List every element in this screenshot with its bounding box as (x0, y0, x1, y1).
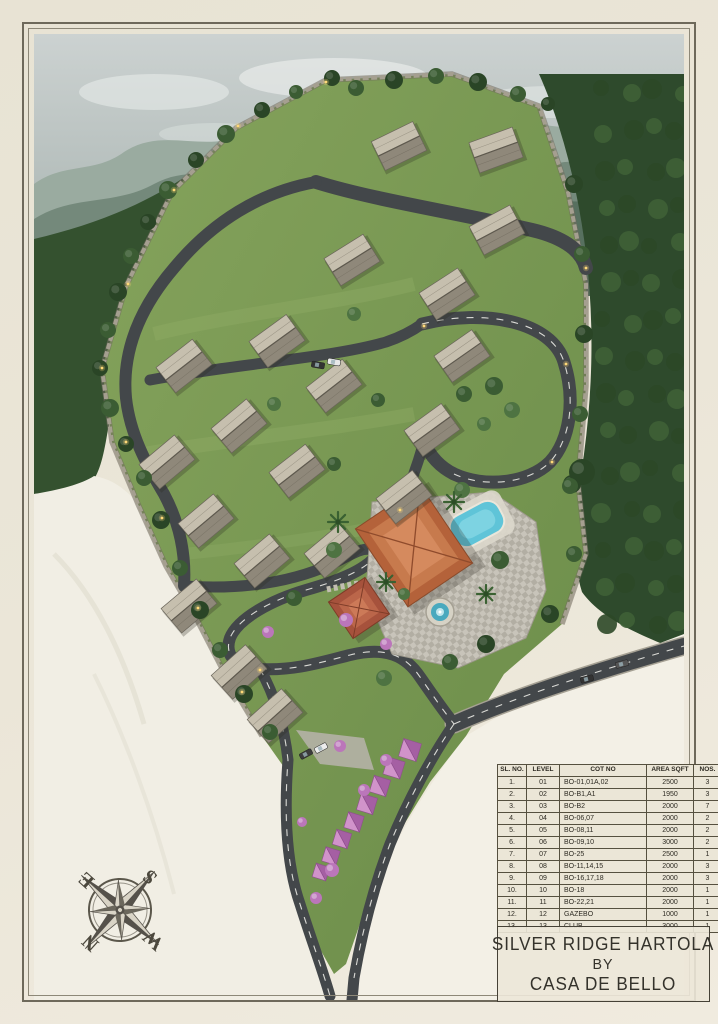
palm-tree (444, 492, 464, 512)
pathway-light (257, 667, 263, 673)
tree (172, 560, 188, 576)
table-cell: 11. (498, 897, 527, 909)
palm-tree (377, 573, 395, 591)
tree (286, 590, 302, 606)
pathway-light (125, 281, 131, 287)
table-cell: 3 (694, 777, 718, 789)
tree (477, 417, 491, 431)
table-cell: BO-18 (560, 885, 647, 897)
table-cell: 1 (694, 909, 718, 921)
table-cell: 1000 (647, 909, 694, 921)
palm-tree (477, 585, 495, 603)
table-cell: 1. (498, 777, 527, 789)
tree (456, 386, 472, 402)
pathway-light (397, 507, 403, 513)
table-cell: 2. (498, 789, 527, 801)
tree (572, 406, 588, 422)
table-cell: 03 (527, 801, 560, 813)
table-cell: 2000 (647, 825, 694, 837)
table-row: 9.09BO-16,17,1820003 (498, 873, 718, 885)
title-by: BY (593, 956, 614, 973)
table-cell: 3. (498, 801, 527, 813)
table-cell: 4. (498, 813, 527, 825)
table-row: 4.04BO-06,0720002 (498, 813, 718, 825)
table-cell: 12 (527, 909, 560, 921)
tree (477, 635, 495, 653)
table-cell: 9. (498, 873, 527, 885)
tree (454, 482, 470, 498)
table-cell: BO-11,14,15 (560, 861, 647, 873)
table-cell: 06 (527, 837, 560, 849)
table-cell: BO-08,11 (560, 825, 647, 837)
tree (326, 542, 342, 558)
column-header: AREA SQFT (647, 765, 694, 777)
tree (327, 457, 341, 471)
tree (398, 588, 410, 600)
table-cell: 7. (498, 849, 527, 861)
plot-table-header: SL. NO.LEVELCOT NOAREA SQFTNOS. (498, 765, 718, 777)
column-header: SL. NO. (498, 765, 527, 777)
table-cell: 1 (694, 897, 718, 909)
pathway-light (99, 365, 105, 371)
pathway-light (323, 79, 329, 85)
table-cell: 11 (527, 897, 560, 909)
table-cell: 1950 (647, 789, 694, 801)
pathway-light (235, 123, 241, 129)
table-cell: BO-16,17,18 (560, 873, 647, 885)
table-cell: BO-06,07 (560, 813, 647, 825)
table-cell: 2000 (647, 897, 694, 909)
pathway-light (239, 689, 245, 695)
pathway-light (123, 439, 129, 445)
tree (504, 402, 520, 418)
table-row: 3.03BO-B220007 (498, 801, 718, 813)
table-cell: 3 (694, 789, 718, 801)
table-cell: 2500 (647, 777, 694, 789)
tree (188, 152, 204, 168)
flowering-shrub (297, 817, 307, 827)
compass-rose: N S E W (44, 832, 196, 984)
tree (491, 551, 509, 569)
tree (485, 377, 503, 395)
table-cell: 1 (694, 885, 718, 897)
pathway-light (549, 459, 555, 465)
tree (348, 80, 364, 96)
tree (442, 654, 458, 670)
tree (109, 283, 127, 301)
tree (541, 97, 555, 111)
table-cell: 6. (498, 837, 527, 849)
tree (574, 246, 590, 262)
table-row: 5.05BO-08,1120002 (498, 825, 718, 837)
table-cell: 2 (694, 837, 718, 849)
tree (562, 478, 578, 494)
developer-name: CASA DE BELLO (530, 974, 676, 995)
table-cell: 01 (527, 777, 560, 789)
pathway-light (421, 323, 427, 329)
tree (262, 724, 278, 740)
table-cell: 07 (527, 849, 560, 861)
table-cell: BO-09,10 (560, 837, 647, 849)
flowering-shrub (380, 638, 392, 650)
table-cell: BO-01,01A,02 (560, 777, 647, 789)
tree (469, 73, 487, 91)
table-cell: BO-B2 (560, 801, 647, 813)
compass-south-label: S (139, 865, 162, 889)
table-row: 2.02BO-B1,A119503 (498, 789, 718, 801)
table-cell: 05 (527, 825, 560, 837)
pathway-light (563, 361, 569, 367)
tree (385, 71, 403, 89)
table-cell: 1 (694, 849, 718, 861)
table-cell: 7 (694, 801, 718, 813)
flowering-shrub (380, 754, 392, 766)
flowering-shrub (262, 626, 274, 638)
palm-tree (328, 512, 348, 532)
table-cell: 2000 (647, 813, 694, 825)
table-cell: BO-22,21 (560, 897, 647, 909)
table-row: 10.10BO-1820001 (498, 885, 718, 897)
table-row: 11.11BO-22,2120001 (498, 897, 718, 909)
tree (254, 102, 270, 118)
tree (510, 86, 526, 102)
table-cell: 2000 (647, 801, 694, 813)
table-cell: 2500 (647, 849, 694, 861)
column-header: NOS. (694, 765, 718, 777)
table-cell: 2000 (647, 861, 694, 873)
table-cell: 3000 (647, 837, 694, 849)
tree (575, 325, 593, 343)
table-row: 8.08BO-11,14,1520003 (498, 861, 718, 873)
tree (428, 68, 444, 84)
column-header: LEVEL (527, 765, 560, 777)
plot-table: SL. NO.LEVELCOT NOAREA SQFTNOS. 1.01BO-0… (497, 764, 718, 933)
tree (376, 670, 392, 686)
pathway-light (171, 187, 177, 193)
table-header-row: SL. NO.LEVELCOT NOAREA SQFTNOS. (498, 765, 718, 777)
table-cell: 2 (694, 825, 718, 837)
tree (140, 214, 156, 230)
tree (541, 605, 559, 623)
tree (347, 307, 361, 321)
table-cell: 10 (527, 885, 560, 897)
pathway-light (583, 265, 589, 271)
tree (101, 399, 119, 417)
pathway-light (195, 605, 201, 611)
table-cell: 02 (527, 789, 560, 801)
tree (217, 125, 235, 143)
flowering-shrub (325, 863, 339, 877)
table-cell: 12. (498, 909, 527, 921)
tree (136, 470, 152, 486)
plot-table-body: 1.01BO-01,01A,02250032.02BO-B1,A1195033.… (498, 777, 718, 933)
table-cell: 2000 (647, 873, 694, 885)
table-cell: 09 (527, 873, 560, 885)
table-cell: 10. (498, 885, 527, 897)
table-row: 12.12GAZEBO10001 (498, 909, 718, 921)
flowering-shrub (339, 613, 353, 627)
table-cell: BO-B1,A1 (560, 789, 647, 801)
tree (212, 642, 228, 658)
tree (100, 322, 116, 338)
flowering-shrub (334, 740, 346, 752)
title-block: SILVER RIDGE HARTOLA BY CASA DE BELLO (497, 926, 710, 1002)
flowering-shrub (310, 892, 322, 904)
table-cell: 2 (694, 813, 718, 825)
table-cell: 2000 (647, 885, 694, 897)
tree (123, 248, 139, 264)
table-cell: 3 (694, 861, 718, 873)
table-row: 6.06BO-09,1030002 (498, 837, 718, 849)
compass-star (47, 837, 194, 984)
table-cell: 8. (498, 861, 527, 873)
project-title: SILVER RIDGE HARTOLA (492, 934, 714, 955)
table-cell: 3 (694, 873, 718, 885)
table-row: 7.07BO-2525001 (498, 849, 718, 861)
tree (565, 175, 583, 193)
tree (566, 546, 582, 562)
flowering-shrub (358, 784, 370, 796)
table-cell: BO-25 (560, 849, 647, 861)
tree (371, 393, 385, 407)
table-cell: 5. (498, 825, 527, 837)
tree (267, 397, 281, 411)
fountain (426, 598, 454, 626)
site-plan-poster: N S E W SL. NO.LEVELCOT NOAREA SQFTNOS. … (0, 0, 718, 1024)
column-header: COT NO (560, 765, 647, 777)
tree (289, 85, 303, 99)
table-cell: 04 (527, 813, 560, 825)
table-cell: GAZEBO (560, 909, 647, 921)
table-cell: 08 (527, 861, 560, 873)
table-row: 1.01BO-01,01A,0225003 (498, 777, 718, 789)
pathway-light (159, 515, 165, 521)
